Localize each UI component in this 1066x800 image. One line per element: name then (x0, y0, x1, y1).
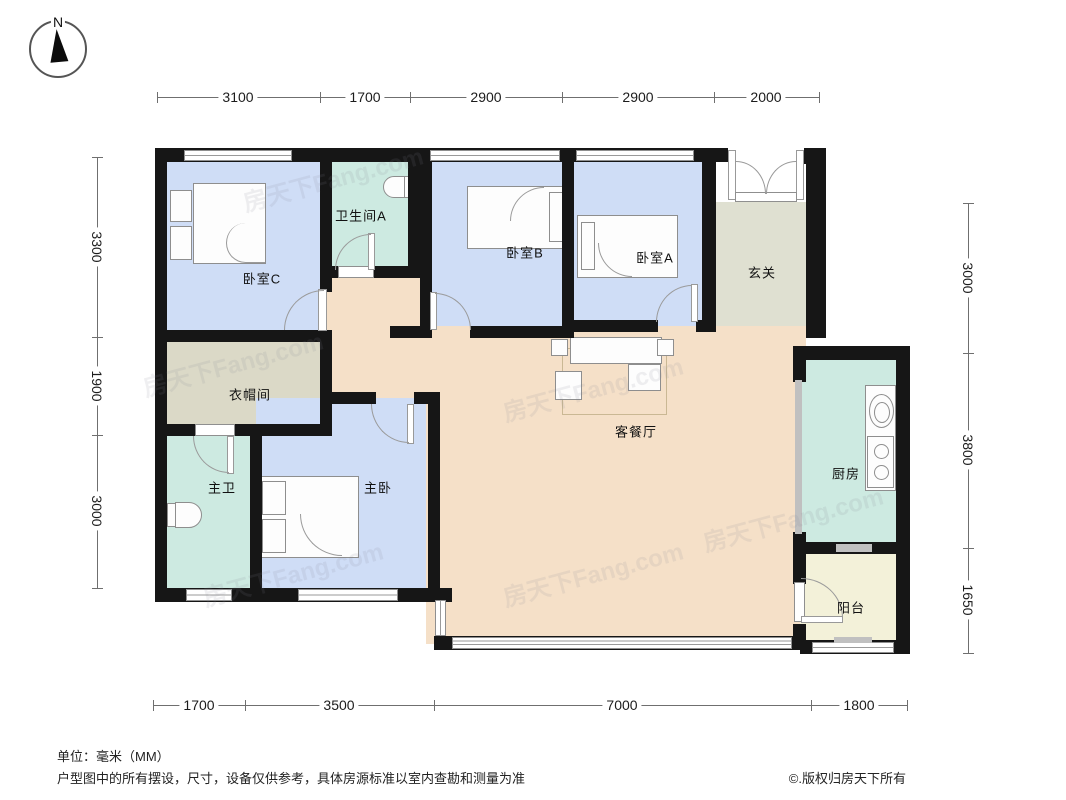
stove-burner (874, 465, 889, 480)
wall (320, 392, 376, 404)
dim-label: 3100 (218, 89, 257, 105)
dim-label: 2000 (746, 89, 785, 105)
wall (155, 148, 167, 602)
dim-label: 7000 (602, 697, 641, 713)
room-label-balcony: 阳台 (837, 598, 865, 617)
toilet-tank-line (404, 177, 405, 197)
room-label-bedroom-b: 卧室B (506, 243, 544, 262)
wall (470, 326, 574, 338)
sofa-chaise (628, 364, 661, 391)
pillow (262, 519, 286, 553)
floor-plan-page: N (0, 0, 1066, 800)
dim-label: 3800 (960, 430, 976, 469)
room-label-bedroom-c: 卧室C (243, 269, 281, 288)
window (298, 589, 398, 601)
door-arc (766, 161, 796, 194)
nightstand (170, 226, 192, 260)
window (435, 600, 446, 636)
nightstand (170, 190, 192, 222)
stove-burner (874, 444, 889, 459)
dim-tick (92, 588, 103, 589)
pillow (581, 222, 595, 270)
dim-label: 2900 (618, 89, 657, 105)
wall (793, 346, 806, 382)
wall (235, 424, 332, 436)
window (452, 637, 792, 649)
door-leaf (691, 284, 698, 322)
dim-tick (92, 435, 103, 436)
door-sill (195, 424, 235, 436)
wall (250, 436, 262, 588)
disclaimer-text: 户型图中的所有摆设，尺寸，设备仅供参考，具体房源标准以室内查勘和测量为准 (57, 768, 525, 787)
dim-label: 3000 (960, 258, 976, 297)
room-label-kitchen: 厨房 (832, 464, 860, 483)
wall (562, 162, 574, 332)
wall (408, 148, 420, 278)
kitchen-balcony-pass (836, 544, 872, 552)
dim-tick (907, 700, 908, 711)
dim-tick (320, 92, 321, 103)
copyright-text: ©.版权归房天下所有 (789, 768, 906, 787)
dim-tick (963, 353, 974, 354)
window (812, 642, 894, 653)
dim-label: 1650 (960, 580, 976, 619)
room-label-bedroom-a: 卧室A (636, 248, 674, 267)
room-label-bathroom-a: 卫生间A (335, 206, 387, 225)
wall (574, 320, 658, 332)
dim-tick (811, 700, 812, 711)
dim-tick (434, 700, 435, 711)
dim-tick (963, 548, 974, 549)
dim-tick (157, 92, 158, 103)
dim-label: 3500 (319, 697, 358, 713)
wall (155, 424, 195, 436)
unit-note: 单位：毫米（MM） (57, 746, 170, 765)
wall (800, 346, 902, 360)
window (184, 150, 292, 161)
window (186, 589, 232, 601)
dim-tick (963, 203, 974, 204)
pillow (262, 481, 286, 515)
armchair (555, 371, 582, 400)
dim-tick (153, 700, 154, 711)
entry-door-post (796, 150, 804, 200)
wall (702, 148, 716, 332)
kitchen-sliding-door (795, 380, 802, 534)
dim-label: 1800 (839, 697, 878, 713)
door-arc (736, 161, 766, 194)
dim-label: 1700 (179, 697, 218, 713)
dim-line (153, 705, 907, 706)
wall (428, 404, 440, 588)
compass-needle-icon (48, 28, 69, 62)
room-label-cloakroom: 衣帽间 (229, 385, 271, 404)
wall (390, 326, 432, 338)
side-table (551, 339, 568, 356)
dim-tick (245, 700, 246, 711)
wall (320, 342, 332, 426)
blanket-fold (226, 223, 265, 263)
wall (793, 532, 806, 584)
dim-label: 2900 (466, 89, 505, 105)
room-label-living-dining: 客餐厅 (615, 422, 657, 441)
dim-tick (963, 653, 974, 654)
wall (414, 392, 440, 404)
wall (155, 330, 332, 342)
dim-tick (92, 337, 103, 338)
dim-tick (92, 157, 103, 158)
wall (806, 148, 826, 338)
dim-tick (819, 92, 820, 103)
window (576, 150, 694, 161)
dim-tick (562, 92, 563, 103)
dim-tick (410, 92, 411, 103)
sink-basin (874, 402, 890, 423)
dim-label: 1900 (89, 366, 105, 405)
dim-tick (714, 92, 715, 103)
compass-icon: N (29, 20, 87, 78)
room-label-master-bath: 主卫 (208, 478, 236, 497)
room-label-entrance: 玄关 (748, 263, 776, 282)
sofa (570, 337, 662, 364)
wall (896, 346, 910, 654)
toilet (175, 502, 202, 528)
dim-label: 3000 (89, 491, 105, 530)
side-table (657, 339, 674, 356)
balcony-sill (834, 637, 872, 643)
dim-label: 3300 (89, 227, 105, 266)
room-label-master-bedroom: 主卧 (364, 478, 392, 497)
dim-label: 1700 (345, 89, 384, 105)
window (430, 150, 560, 161)
